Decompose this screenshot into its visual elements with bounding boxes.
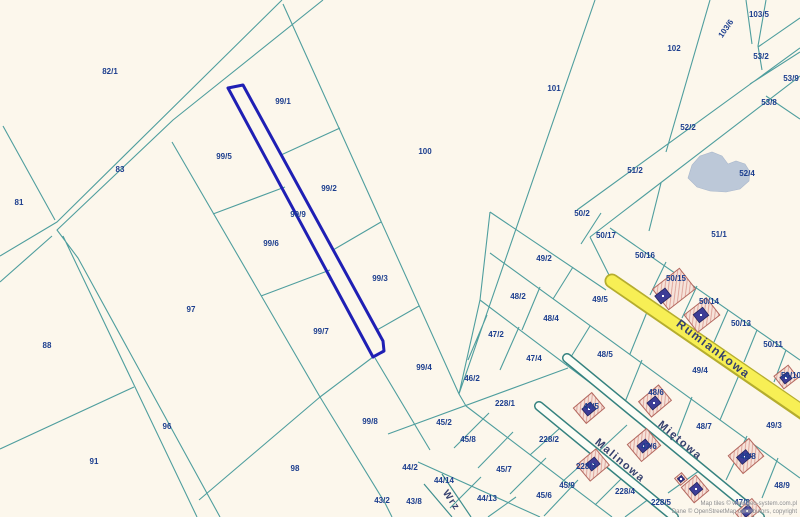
- parcel-label-50-14: 50/14: [699, 297, 720, 306]
- parcel-label-228-2: 228/2: [539, 435, 560, 444]
- parcel-label-49-2: 49/2: [536, 254, 552, 263]
- parcel-label-99-8: 99/8: [362, 417, 378, 426]
- parcel-label-50-13: 50/13: [731, 319, 752, 328]
- parcel-label-49-5: 49/5: [592, 295, 608, 304]
- map-attribution: Map tiles © www.geo-system.com.pl Dane ©…: [672, 501, 797, 516]
- parcel-label-103-5: 103/5: [749, 10, 770, 19]
- parcel-label-50-10: 50/10: [781, 371, 800, 380]
- parcel-label-102: 102: [667, 44, 681, 53]
- parcel-label-48-9: 48/9: [774, 481, 790, 490]
- parcel-label-99-6: 99/6: [263, 239, 279, 248]
- parcel-label-98: 98: [291, 464, 300, 473]
- parcel-label-44-2: 44/2: [402, 463, 418, 472]
- parcel-label-44-13: 44/13: [477, 494, 498, 503]
- parcel-label-47-5: 47/5: [583, 402, 599, 411]
- parcel-label-100: 100: [418, 147, 432, 156]
- parcel-label-49-4: 49/4: [692, 366, 708, 375]
- parcel-label-97: 97: [187, 305, 196, 314]
- parcel-label-82-1: 82/1: [102, 67, 118, 76]
- parcel-label-47-4: 47/4: [526, 354, 542, 363]
- parcel-label-48-7: 48/7: [696, 422, 712, 431]
- parcel-label-99-4: 99/4: [416, 363, 432, 372]
- parcel-label-53-9: 53/9: [783, 74, 799, 83]
- parcel-label-52-2: 52/2: [680, 123, 696, 132]
- parcel-label-50-11: 50/11: [763, 340, 783, 349]
- parcel-label-228-3: 228/3: [576, 462, 597, 471]
- parcel-label-45-6: 45/6: [536, 491, 552, 500]
- parcel-label-96: 96: [163, 422, 172, 431]
- parcel-label-50-17: 50/17: [596, 231, 617, 240]
- parcel-label-50-2: 50/2: [574, 209, 590, 218]
- parcel-label-83: 83: [116, 165, 125, 174]
- parcel-label-50-15: 50/15: [666, 274, 687, 283]
- parcel-label-45-2: 45/2: [436, 418, 452, 427]
- parcel-label-45-8: 45/8: [460, 435, 476, 444]
- parcel-label-228-5: 228/5: [651, 498, 672, 507]
- parcel-label-101: 101: [547, 84, 561, 93]
- parcel-label-228-1: 228/1: [495, 399, 516, 408]
- parcel-label-47-6: 47/6: [641, 442, 657, 451]
- parcel-label-44-14: 44/14: [434, 476, 455, 485]
- parcel-label-51-2: 51/2: [627, 166, 643, 175]
- parcel-label-53-8: 53/8: [761, 98, 777, 107]
- parcel-label-91: 91: [90, 457, 99, 466]
- parcel-label-53-2: 53/2: [753, 52, 769, 61]
- parcel-label-47-2: 47/2: [488, 330, 504, 339]
- attribution-osm[interactable]: Dane © OpenStreetMap contributors, copyr…: [672, 509, 797, 517]
- parcel-label-46-2: 46/2: [464, 374, 480, 383]
- parcel-label-48-5: 48/5: [597, 350, 613, 359]
- map-canvas[interactable]: 82/18381889196979899/199/599/299/699/999…: [0, 0, 800, 517]
- parcel-label-48-2: 48/2: [510, 292, 526, 301]
- parcel-label-45-7: 45/7: [496, 465, 512, 474]
- parcel-label-49-3: 49/3: [766, 421, 782, 430]
- parcel-label-48-4: 48/4: [543, 314, 559, 323]
- parcel-label-99-2: 99/2: [321, 184, 337, 193]
- parcel-label-228-4: 228/4: [615, 487, 636, 496]
- parcel-label-48-8: 48/8: [740, 452, 756, 461]
- cadastral-map[interactable]: 82/18381889196979899/199/599/299/699/999…: [0, 0, 800, 517]
- parcel-label-99-7: 99/7: [313, 327, 329, 336]
- parcel-label-48-6: 48/6: [648, 388, 664, 397]
- parcel-label-43-2: 43/2: [374, 496, 390, 505]
- attribution-tiles: Map tiles © www.geo-system.com.pl: [672, 501, 797, 509]
- parcel-label-81: 81: [15, 198, 24, 207]
- parcel-label-99-3: 99/3: [372, 274, 388, 283]
- parcel-label-99-1: 99/1: [275, 97, 291, 106]
- parcel-label-43-8: 43/8: [406, 497, 422, 506]
- parcel-label-51-1: 51/1: [711, 230, 727, 239]
- parcel-label-50-16: 50/16: [635, 251, 656, 260]
- parcel-label-52-4: 52/4: [739, 169, 755, 178]
- parcel-label-45-9: 45/9: [559, 481, 575, 490]
- parcel-label-99-9: 99/9: [290, 210, 306, 219]
- parcel-label-99-5: 99/5: [216, 152, 232, 161]
- parcel-label-88: 88: [43, 341, 52, 350]
